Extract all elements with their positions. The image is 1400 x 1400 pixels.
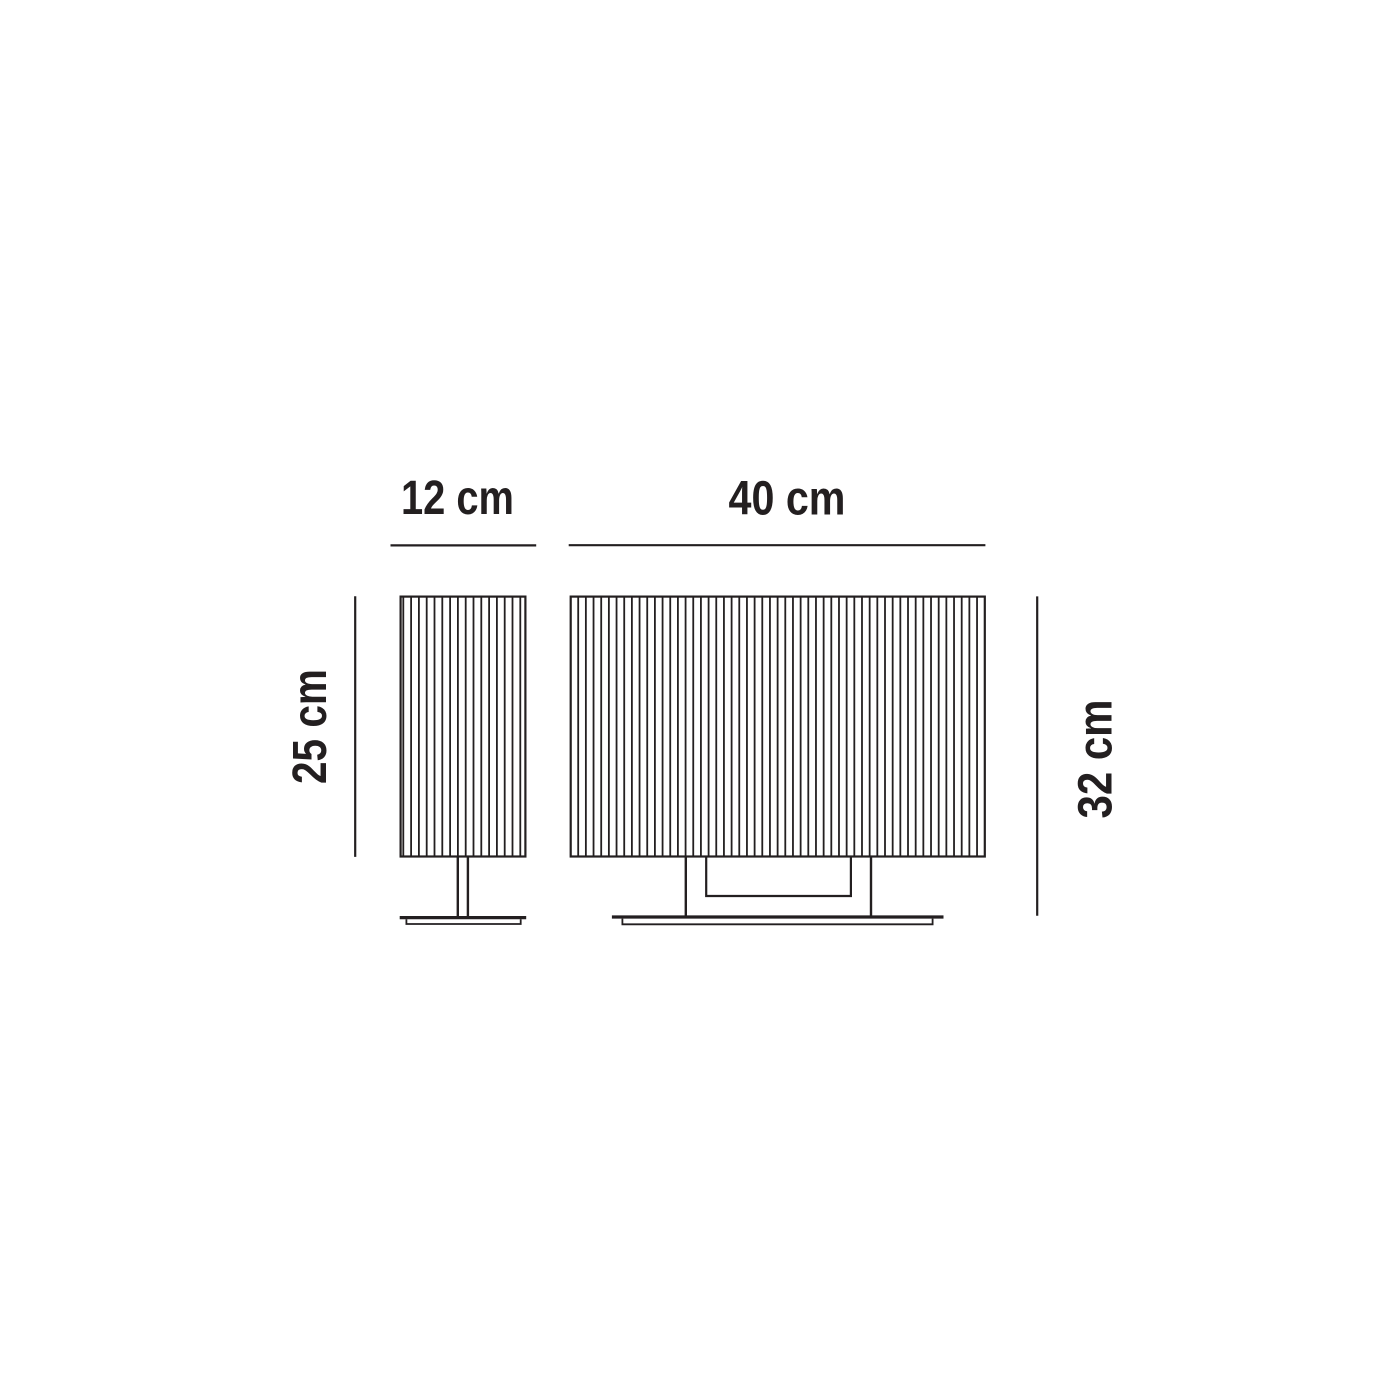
svg-text:25 cm: 25 cm	[284, 669, 337, 784]
svg-text:40 cm: 40 cm	[729, 473, 846, 526]
svg-text:32 cm: 32 cm	[1070, 700, 1123, 819]
svg-text:12 cm: 12 cm	[401, 472, 514, 525]
